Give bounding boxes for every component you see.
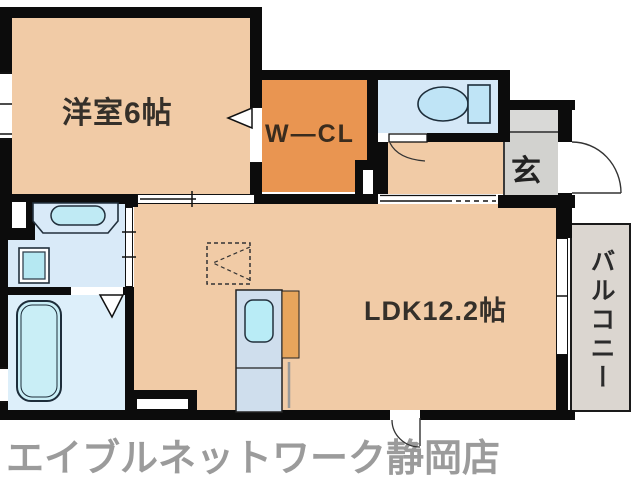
floorplan-canvas: 洋室6帖 W―CL 玄 LDK12.2帖 バルコニー エイブルネットワーク静岡店	[0, 0, 640, 480]
window-bathroom-left	[0, 367, 8, 403]
pipe-space-inset	[12, 202, 26, 228]
wall-segment	[250, 18, 262, 107]
wall-segment	[8, 287, 71, 295]
entrance-upper-cabinet	[510, 110, 563, 133]
room-toilet	[378, 80, 498, 133]
closet-door-opening	[250, 107, 262, 163]
wall-segment	[0, 410, 390, 420]
bottom-door-opening	[390, 410, 420, 420]
wall-segment	[427, 133, 510, 142]
hallway	[388, 142, 503, 194]
wall-segment	[0, 7, 262, 18]
wall-segment	[0, 202, 8, 367]
sliding-door-washroom	[125, 207, 133, 287]
wall-segment	[355, 160, 378, 170]
closet-corner-niche	[363, 170, 373, 192]
room-label-ldk: LDK12.2帖	[364, 289, 507, 328]
room-label-entrance: 玄	[511, 146, 541, 190]
entrance-door-swing	[572, 142, 621, 193]
wall-segment	[250, 163, 262, 194]
room-label-wcl: W―CL	[265, 120, 355, 149]
wall-segment	[498, 100, 575, 110]
hall-ldk-opening	[378, 194, 498, 204]
wall-segment	[558, 110, 572, 142]
wall-segment	[556, 355, 568, 410]
wall-segment	[556, 208, 570, 238]
wall-segment	[498, 195, 575, 208]
room-label-western: 洋室6帖	[62, 88, 173, 132]
wall-segment	[355, 170, 363, 194]
toilet-door-leaf	[389, 134, 427, 142]
wall-segment	[0, 140, 12, 202]
room-bathroom	[8, 295, 125, 410]
room-label-balcony: バルコニー	[583, 248, 619, 393]
wall-niche-inset	[137, 399, 188, 409]
bathroom-door-opening	[71, 287, 123, 295]
wall-segment	[420, 410, 575, 420]
wall-segment	[377, 142, 388, 194]
entrance-door-opening	[558, 142, 572, 193]
store-logo-text: エイブルネットワーク静岡店	[6, 427, 500, 480]
wall-segment	[262, 70, 510, 80]
window-western-left	[0, 72, 12, 140]
wall-segment	[250, 194, 378, 204]
wall-segment	[0, 18, 12, 72]
window-balcony	[556, 238, 568, 355]
sliding-door-western-ldk	[137, 194, 255, 204]
